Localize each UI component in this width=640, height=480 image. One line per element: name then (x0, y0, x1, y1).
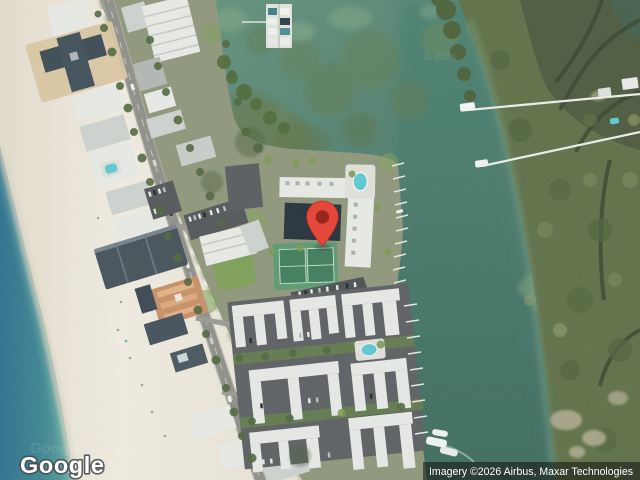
satellite-map[interactable]: Google © 2026 Google Imagery ©2026 Airbu… (0, 0, 640, 480)
pin-core (316, 210, 330, 224)
imagery-attribution: Imagery ©2026 Airbus, Maxar Technologies (429, 466, 633, 478)
attribution-bar: Imagery ©2026 Airbus, Maxar Technologies (423, 462, 640, 480)
tile-copyright-watermark: © 2026 (424, 52, 457, 63)
map-viewport[interactable]: Google © 2026 Google Imagery ©2026 Airbu… (0, 0, 640, 480)
google-logo[interactable]: Google (20, 452, 105, 478)
